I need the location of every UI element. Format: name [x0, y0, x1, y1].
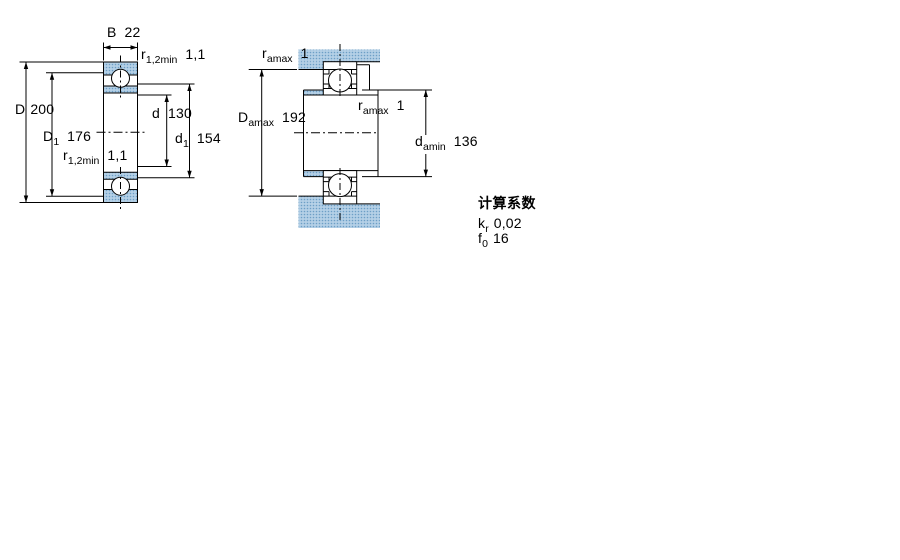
label-Damax: Damax192: [238, 110, 306, 130]
shaft-shoulder-bottom: [304, 171, 324, 177]
housing-top: [299, 50, 381, 62]
left-drawing: [20, 43, 195, 210]
diagram-canvas: [0, 0, 900, 560]
label-damin: damin136: [415, 134, 478, 154]
label-B: B22: [107, 25, 141, 39]
housing-shoulder-bottom: [299, 196, 324, 204]
label-D: D200: [15, 102, 54, 116]
label-ramax-top: ramax1: [262, 46, 309, 66]
right-drawing: [249, 44, 432, 228]
dimension-Damax: [249, 70, 297, 197]
calculation-factors-title: 计算系数: [478, 196, 536, 210]
factor-f0: f016: [478, 231, 509, 251]
bearing-dimension-diagram-page: B22 r1,2min1,1 D200 D1176 d130 d1154 r1,…: [0, 0, 900, 560]
label-r12min-top: r1,2min1,1: [141, 47, 205, 67]
label-d: d130: [152, 106, 192, 120]
label-r12min-bottom: r1,2min1,1: [63, 148, 127, 168]
housing-bottom: [299, 204, 381, 228]
label-d1: d1154: [175, 131, 221, 151]
label-ramax-mid: ramax1: [358, 98, 405, 118]
shaft-shoulder-top: [304, 90, 324, 95]
label-D1: D1176: [43, 129, 91, 149]
